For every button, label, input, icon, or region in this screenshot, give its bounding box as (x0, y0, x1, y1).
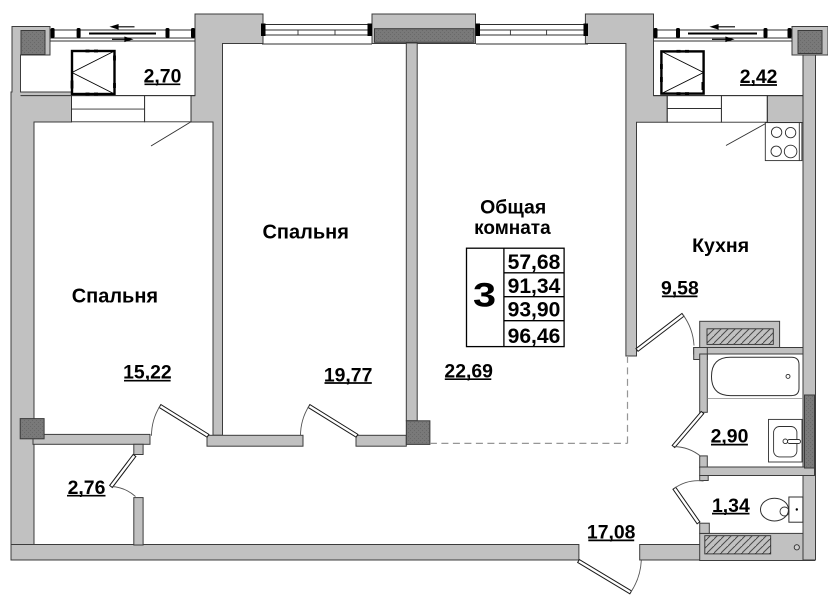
svg-text:91,34: 91,34 (508, 275, 561, 298)
svg-text:Спальня: Спальня (262, 221, 348, 243)
svg-text:комната: комната (474, 218, 551, 239)
svg-text:57,68: 57,68 (508, 251, 561, 274)
svg-text:Кухня: Кухня (692, 235, 749, 257)
svg-text:Спальня: Спальня (72, 285, 158, 307)
svg-text:93,90: 93,90 (508, 299, 561, 322)
svg-text:96,46: 96,46 (508, 325, 561, 348)
svg-text:Общая: Общая (480, 197, 546, 219)
svg-text:3: 3 (473, 277, 496, 315)
